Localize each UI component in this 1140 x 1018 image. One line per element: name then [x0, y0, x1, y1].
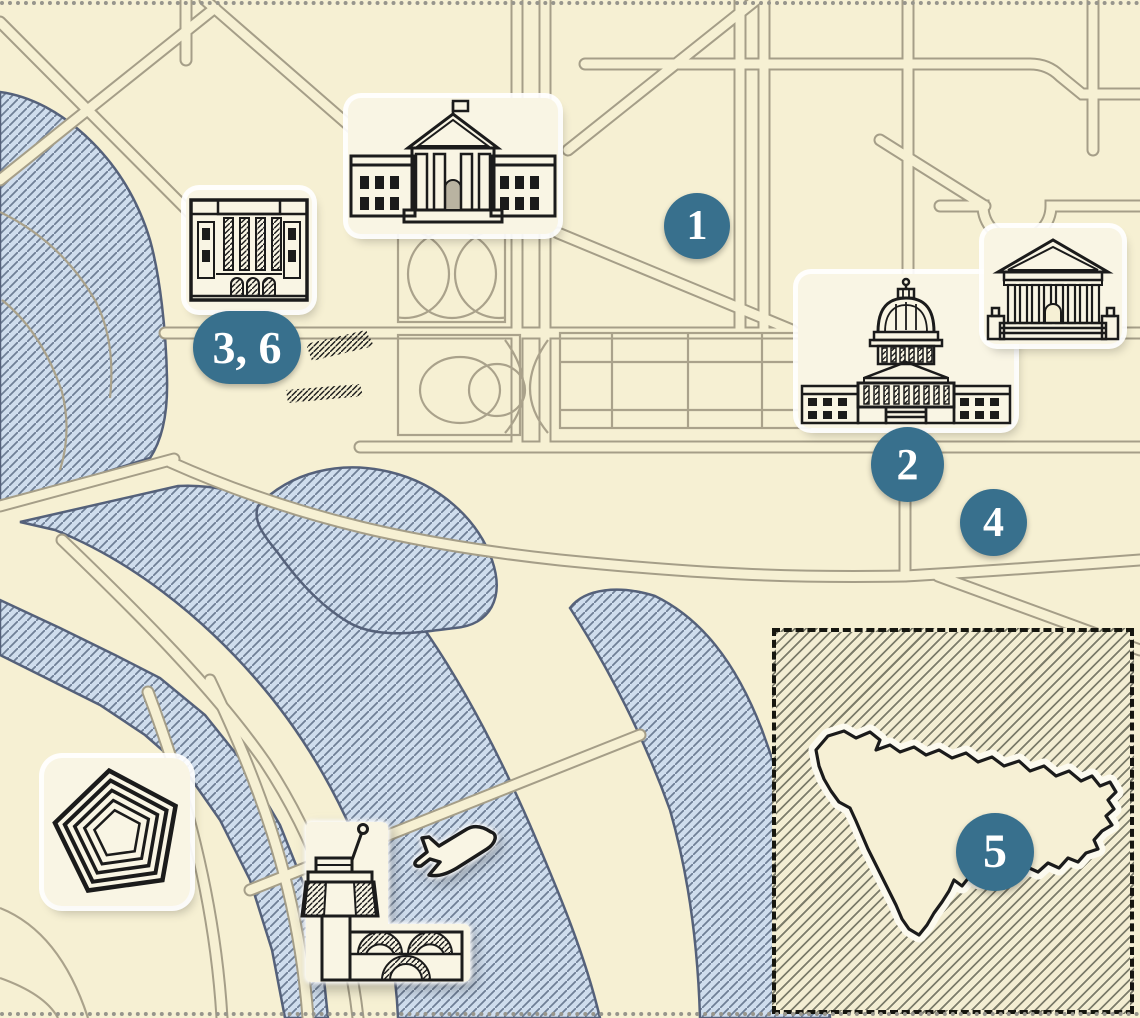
- marker-label: 3, 6: [213, 325, 282, 371]
- pentagon-icon: [44, 758, 190, 906]
- courthouse-icon: [984, 228, 1122, 344]
- country-outline-icon: [776, 632, 1130, 1010]
- airplane-icon: [395, 816, 507, 908]
- map-marker-5[interactable]: 5: [956, 813, 1034, 891]
- map-marker-2[interactable]: 2: [871, 427, 944, 502]
- figure-border-bottom: [0, 1012, 1140, 1016]
- map-marker-4[interactable]: 4: [960, 489, 1027, 556]
- marker-label: 4: [983, 502, 1004, 544]
- dc-illustrated-map: 1 2 3, 6 4 5: [0, 0, 1140, 1018]
- capitol-icon: [798, 274, 1014, 428]
- marker-label: 2: [897, 443, 919, 487]
- government-building-icon: [186, 190, 312, 310]
- marker-label: 5: [983, 828, 1007, 876]
- inset-map: [772, 628, 1134, 1014]
- marker-label: 1: [687, 205, 708, 247]
- map-marker-3-6[interactable]: 3, 6: [193, 311, 301, 384]
- map-marker-1[interactable]: 1: [664, 193, 730, 259]
- white-house-icon: [348, 98, 558, 234]
- figure-border-top: [0, 1, 1140, 5]
